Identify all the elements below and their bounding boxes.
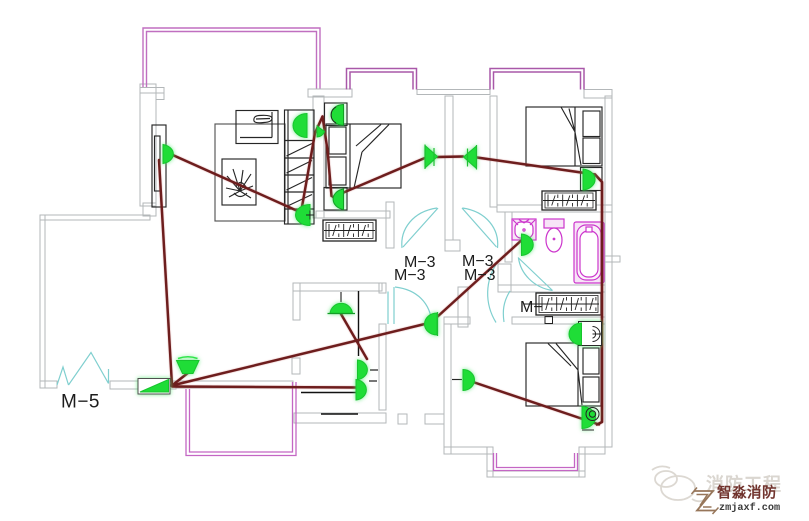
svg-text:M−: M−	[520, 299, 543, 316]
svg-text:M−3: M−3	[464, 267, 496, 284]
svg-text:智淼消防: 智淼消防	[717, 484, 777, 502]
svg-text:zmjaxf.com: zmjaxf.com	[719, 502, 780, 514]
svg-text:M−5: M−5	[61, 392, 100, 413]
svg-text:M−3: M−3	[394, 267, 426, 284]
